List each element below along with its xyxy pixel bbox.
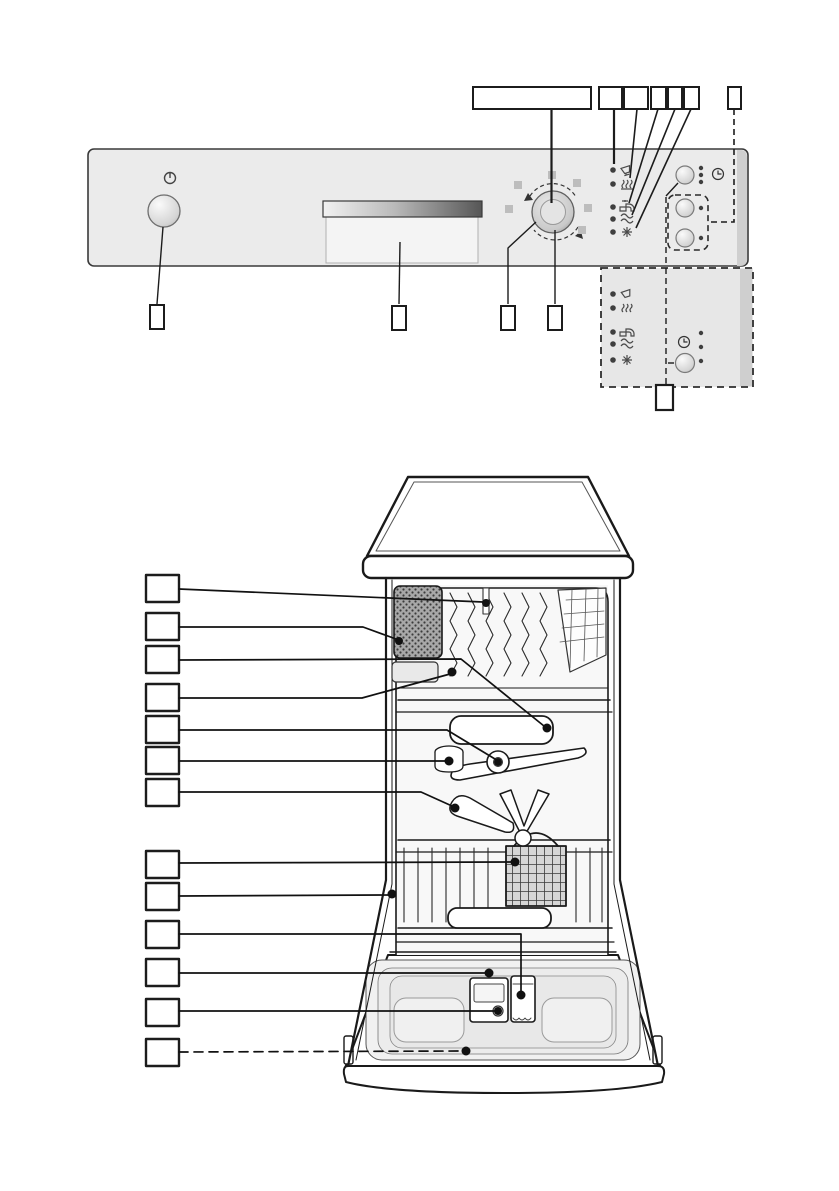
callout-box-7	[146, 779, 179, 806]
option-button-1	[676, 199, 694, 217]
callout-box-inset	[656, 385, 673, 410]
diagram-svg	[0, 0, 839, 1191]
lower-basket-handle	[448, 908, 551, 928]
option-button-2	[676, 229, 694, 247]
dashed-leader	[179, 1051, 462, 1052]
worktop	[363, 477, 633, 578]
callout-box-led-3	[651, 87, 666, 109]
top-callout-row	[473, 87, 741, 109]
panel-end-cap	[737, 150, 747, 266]
callout-box-1	[146, 575, 179, 602]
callout-box-led-5	[684, 87, 699, 109]
callout-box-10	[146, 921, 179, 948]
callout-box-11	[146, 959, 179, 986]
dishwasher-diagram	[146, 477, 664, 1093]
callout-box-6	[146, 747, 179, 774]
rinse-aid-star-icon	[622, 355, 632, 365]
inset-panel-variant	[601, 268, 753, 410]
callout-box-handle	[392, 306, 406, 330]
callout-box-13	[146, 1039, 179, 1066]
control-panel-section	[88, 87, 753, 410]
led-dot	[699, 206, 703, 210]
door-handle	[323, 201, 482, 263]
callout-box-12	[146, 999, 179, 1026]
callout-box-options	[728, 87, 741, 109]
callout-box-9	[146, 883, 179, 910]
door-bottom-edge	[344, 1066, 664, 1093]
callout-box-4	[146, 684, 179, 711]
callout-box-power	[150, 305, 164, 329]
power-button	[148, 195, 180, 227]
manual-page	[0, 0, 839, 1191]
inset-end-cap	[740, 269, 752, 386]
callout-box-selector-center	[548, 306, 562, 330]
led-dot	[699, 236, 703, 240]
door-recess-left	[394, 998, 464, 1042]
textured-insert	[394, 586, 442, 658]
interior-callout-column	[146, 575, 179, 1066]
door-recess-right	[542, 998, 612, 1042]
bottom-callout-row	[150, 305, 562, 330]
rinse-aid-star-icon	[622, 227, 632, 237]
inset-button	[676, 354, 695, 373]
delay-button	[676, 166, 694, 184]
callout-box-selector-ring	[501, 306, 515, 330]
door-open	[344, 955, 664, 1093]
detergent-dispenser	[470, 978, 508, 1022]
callout-box-5	[146, 716, 179, 743]
callout-box-led-1	[599, 87, 622, 109]
time-led-dots	[699, 166, 703, 184]
callout-box-8	[146, 851, 179, 878]
callout-box-2	[146, 613, 179, 640]
callout-box-3	[146, 646, 179, 673]
callout-box-led-2	[624, 87, 648, 109]
callout-box-programs	[473, 87, 591, 109]
callout-box-led-4	[668, 87, 682, 109]
